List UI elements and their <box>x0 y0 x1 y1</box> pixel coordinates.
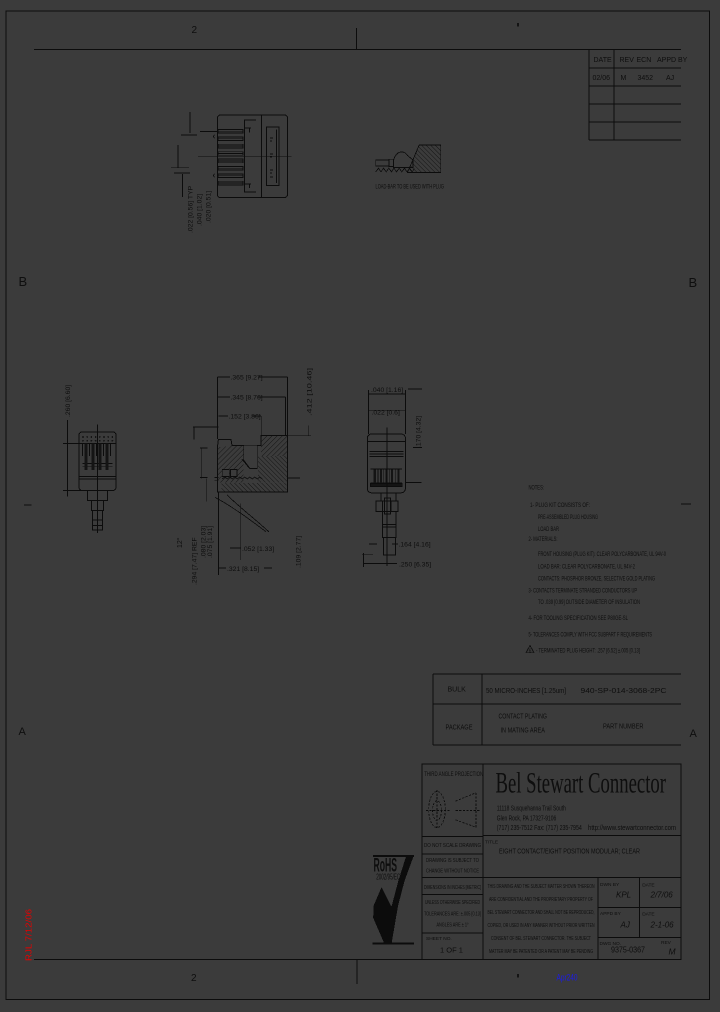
svg-text:940-SP-014-3068-2PC: 940-SP-014-3068-2PC <box>581 688 667 695</box>
svg-text:.365 [9.27]: .365 [9.27] <box>231 375 263 382</box>
svg-text:2: 2 <box>191 973 197 984</box>
svg-text:.022 [0.56] TYP: .022 [0.56] TYP <box>187 185 194 233</box>
svg-text:RJL 7/12/06: RJL 7/12/06 <box>25 908 34 961</box>
svg-text:BEL STEWART CONNECTOR AND SHAL: BEL STEWART CONNECTOR AND SHALL NOT BE R… <box>488 910 595 916</box>
svg-text:DO NOT SCALE DRAWING: DO NOT SCALE DRAWING <box>424 843 481 849</box>
svg-text:ECN: ECN <box>637 57 652 64</box>
svg-text:2/7/06: 2/7/06 <box>650 891 674 900</box>
svg-text:DATE: DATE <box>594 57 612 64</box>
svg-text:.109 [2.77]: .109 [2.77] <box>296 536 303 568</box>
svg-text:6: 6 <box>529 648 532 654</box>
svg-text:DWN BY: DWN BY <box>600 882 620 888</box>
svg-text:.412 [10.46]: .412 [10.46] <box>307 368 314 416</box>
svg-text:PRE-ASSEMBLED PLUG HOUSING: PRE-ASSEMBLED PLUG HOUSING <box>538 514 598 521</box>
svg-text:A: A <box>690 728 698 740</box>
svg-text:http://www.stewartconnector.co: http://www.stewartconnector.com <box>588 823 676 832</box>
svg-text:THIS DRAWING AND THE SUBJECT M: THIS DRAWING AND THE SUBJECT MATTER SHOW… <box>488 884 595 890</box>
svg-text:ANGLES ARE ± 1°: ANGLES ARE ± 1° <box>437 923 469 929</box>
svg-text:A: A <box>19 726 27 738</box>
svg-text:.040 [1.16]: .040 [1.16] <box>371 387 403 394</box>
svg-text:.020 [0.51]: .020 [0.51] <box>205 191 212 223</box>
svg-text:.164 [4.16]: .164 [4.16] <box>399 542 431 549</box>
svg-text:REV: REV <box>620 57 635 64</box>
svg-text:THIRD ANGLE PROJECTION: THIRD ANGLE PROJECTION <box>424 771 483 778</box>
svg-text:(717) 235-7512 Fax: (717) 235: (717) 235-7512 Fax: (717) 235-7954 <box>497 823 582 832</box>
svg-text:DRAWING IS SUBJECT TO: DRAWING IS SUBJECT TO <box>426 858 479 864</box>
svg-text:IN MATING AREA: IN MATING AREA <box>501 728 546 735</box>
svg-text:.052 [1.33]: .052 [1.33] <box>242 546 274 553</box>
svg-text:NOTES:: NOTES: <box>529 485 545 492</box>
svg-text:KPL: KPL <box>616 891 631 900</box>
svg-text:1 OF 1: 1 OF 1 <box>440 946 463 955</box>
svg-text:11118 Susquehanna Trail South: 11118 Susquehanna Trail South <box>497 804 566 813</box>
svg-text:TO .039 [0.99] OUTSIDE DIAMETE: TO .039 [0.99] OUTSIDE DIAMETER OF INSUL… <box>538 599 640 606</box>
svg-text:EIGHT CONTACT/EIGHT POSITION M: EIGHT CONTACT/EIGHT POSITION MODULAR; CL… <box>499 846 640 855</box>
svg-text:AJ: AJ <box>666 75 674 82</box>
svg-text:LOAD BAR: LOAD BAR <box>538 526 559 533</box>
svg-text:TITLE: TITLE <box>485 840 498 846</box>
svg-text:SHEET NO.: SHEET NO. <box>426 936 452 942</box>
svg-text:.022 [0.6]: .022 [0.6] <box>372 410 400 417</box>
svg-text:.260 [6.60]: .260 [6.60] <box>65 385 72 417</box>
svg-text:2-1-06: 2-1-06 <box>650 921 675 930</box>
svg-text:.294 [7.47] REF: .294 [7.47] REF <box>192 537 199 585</box>
svg-text:CHANGE WITHOUT NOTICE: CHANGE WITHOUT NOTICE <box>426 869 479 875</box>
svg-text:PACKAGE: PACKAGE <box>446 725 473 732</box>
svg-text:FRONT HOUSING (PLUG KIT): CLEA: FRONT HOUSING (PLUG KIT): CLEAR POLYCARB… <box>538 551 666 558</box>
svg-text:2002/95/EC: 2002/95/EC <box>376 873 400 882</box>
svg-text:2- MATERIALS:: 2- MATERIALS: <box>529 536 558 543</box>
svg-text:B: B <box>19 274 28 289</box>
svg-text:PART NUMBER: PART NUMBER <box>603 724 644 731</box>
svg-text:LOAD BAR: CLEAR POLYCARBONATE,: LOAD BAR: CLEAR POLYCARBONATE, UL 94V-2 <box>538 564 635 571</box>
svg-text:.040 [1.02]: .040 [1.02] <box>196 194 203 226</box>
svg-text:50 MICRO-INCHES [1.25um]: 50 MICRO-INCHES [1.25um] <box>486 688 566 695</box>
svg-text:APPD BY: APPD BY <box>657 57 688 64</box>
svg-text:CONTACT PLATING: CONTACT PLATING <box>499 714 548 721</box>
svg-text:REV: REV <box>661 940 672 946</box>
svg-text:3452: 3452 <box>638 75 654 82</box>
svg-text:.345 [8.76]: .345 [8.76] <box>231 395 263 402</box>
svg-text:ARE CONFIDENTIAL AND THE PROPR: ARE CONFIDENTIAL AND THE PROPRIETARY PRO… <box>489 897 593 903</box>
svg-text:9375-0367: 9375-0367 <box>611 946 645 955</box>
svg-text:MATTER MAY BE PATENTED OR A PA: MATTER MAY BE PATENTED OR A PATENT MAY B… <box>489 949 593 955</box>
svg-text:Apr240: Apr240 <box>557 973 578 984</box>
svg-text:.250 [6.35]: .250 [6.35] <box>399 562 431 569</box>
svg-text:DATE: DATE <box>642 912 654 918</box>
svg-text:UNLESS OTHERWISE SPECIFIED: UNLESS OTHERWISE SPECIFIED <box>425 900 480 906</box>
svg-text:BULK: BULK <box>448 687 467 694</box>
svg-text:LOAD-BAR TO BE USED WITH PLUG: LOAD-BAR TO BE USED WITH PLUG <box>376 184 445 191</box>
svg-text:CONSENT OF BEL STEWART CONNECT: CONSENT OF BEL STEWART CONNECTOR. THE SU… <box>491 936 591 942</box>
svg-text:1- PLUG KIT CONSISTS OF:: 1- PLUG KIT CONSISTS OF: <box>530 502 590 509</box>
svg-text:5- TOLERANCES COMPLY WITH FCC: 5- TOLERANCES COMPLY WITH FCC SUBPART F … <box>529 632 653 639</box>
svg-text:B: B <box>689 275 698 290</box>
svg-text:CONTACTS: PHOSPHOR BRONZE, SEL: CONTACTS: PHOSPHOR BRONZE, SELECTIVE GOL… <box>538 576 655 583</box>
svg-text:12°: 12° <box>176 537 184 548</box>
svg-text:APPD BY: APPD BY <box>600 911 622 917</box>
svg-text:- TERMINATED PLUG HEIGHT: .257: - TERMINATED PLUG HEIGHT: .257 [6.52] ±.… <box>536 648 640 655</box>
svg-text:Glen Rock, PA 17327-9106: Glen Rock, PA 17327-9106 <box>497 814 557 823</box>
svg-text:02/06: 02/06 <box>593 75 611 82</box>
svg-text:.170 [4.32]: .170 [4.32] <box>416 416 423 448</box>
svg-text:DATE: DATE <box>642 883 654 889</box>
svg-text:AJ: AJ <box>620 921 631 930</box>
svg-text:4- FOR TOOLING SPECIFICATION S: 4- FOR TOOLING SPECIFICATION SEE P80GE-S… <box>529 615 629 622</box>
svg-text:.075 [1.91]: .075 [1.91] <box>207 526 214 558</box>
svg-text:M: M <box>669 947 677 957</box>
svg-text:DIMENSIONS IN INCHES [METRIC]: DIMENSIONS IN INCHES [METRIC] <box>424 885 481 891</box>
svg-text:3- CONTACTS TERMINATE STRANDED: 3- CONTACTS TERMINATE STRANDED CONDUCTOR… <box>529 588 638 595</box>
svg-text:.321 [8.15]: .321 [8.15] <box>227 566 259 573</box>
svg-text:COPIED, OR USED IN ANY MANNER: COPIED, OR USED IN ANY MANNER WITHOUT PR… <box>488 923 595 929</box>
svg-text:TOLERANCES ARE: ±.005 [0.13]: TOLERANCES ARE: ±.005 [0.13] <box>424 912 481 918</box>
svg-text:2: 2 <box>192 25 198 36</box>
svg-text:M: M <box>621 75 627 82</box>
svg-text:Bel Stewart Connector: Bel Stewart Connector <box>496 768 667 800</box>
svg-text:.152 [3.86]: .152 [3.86] <box>229 414 261 421</box>
